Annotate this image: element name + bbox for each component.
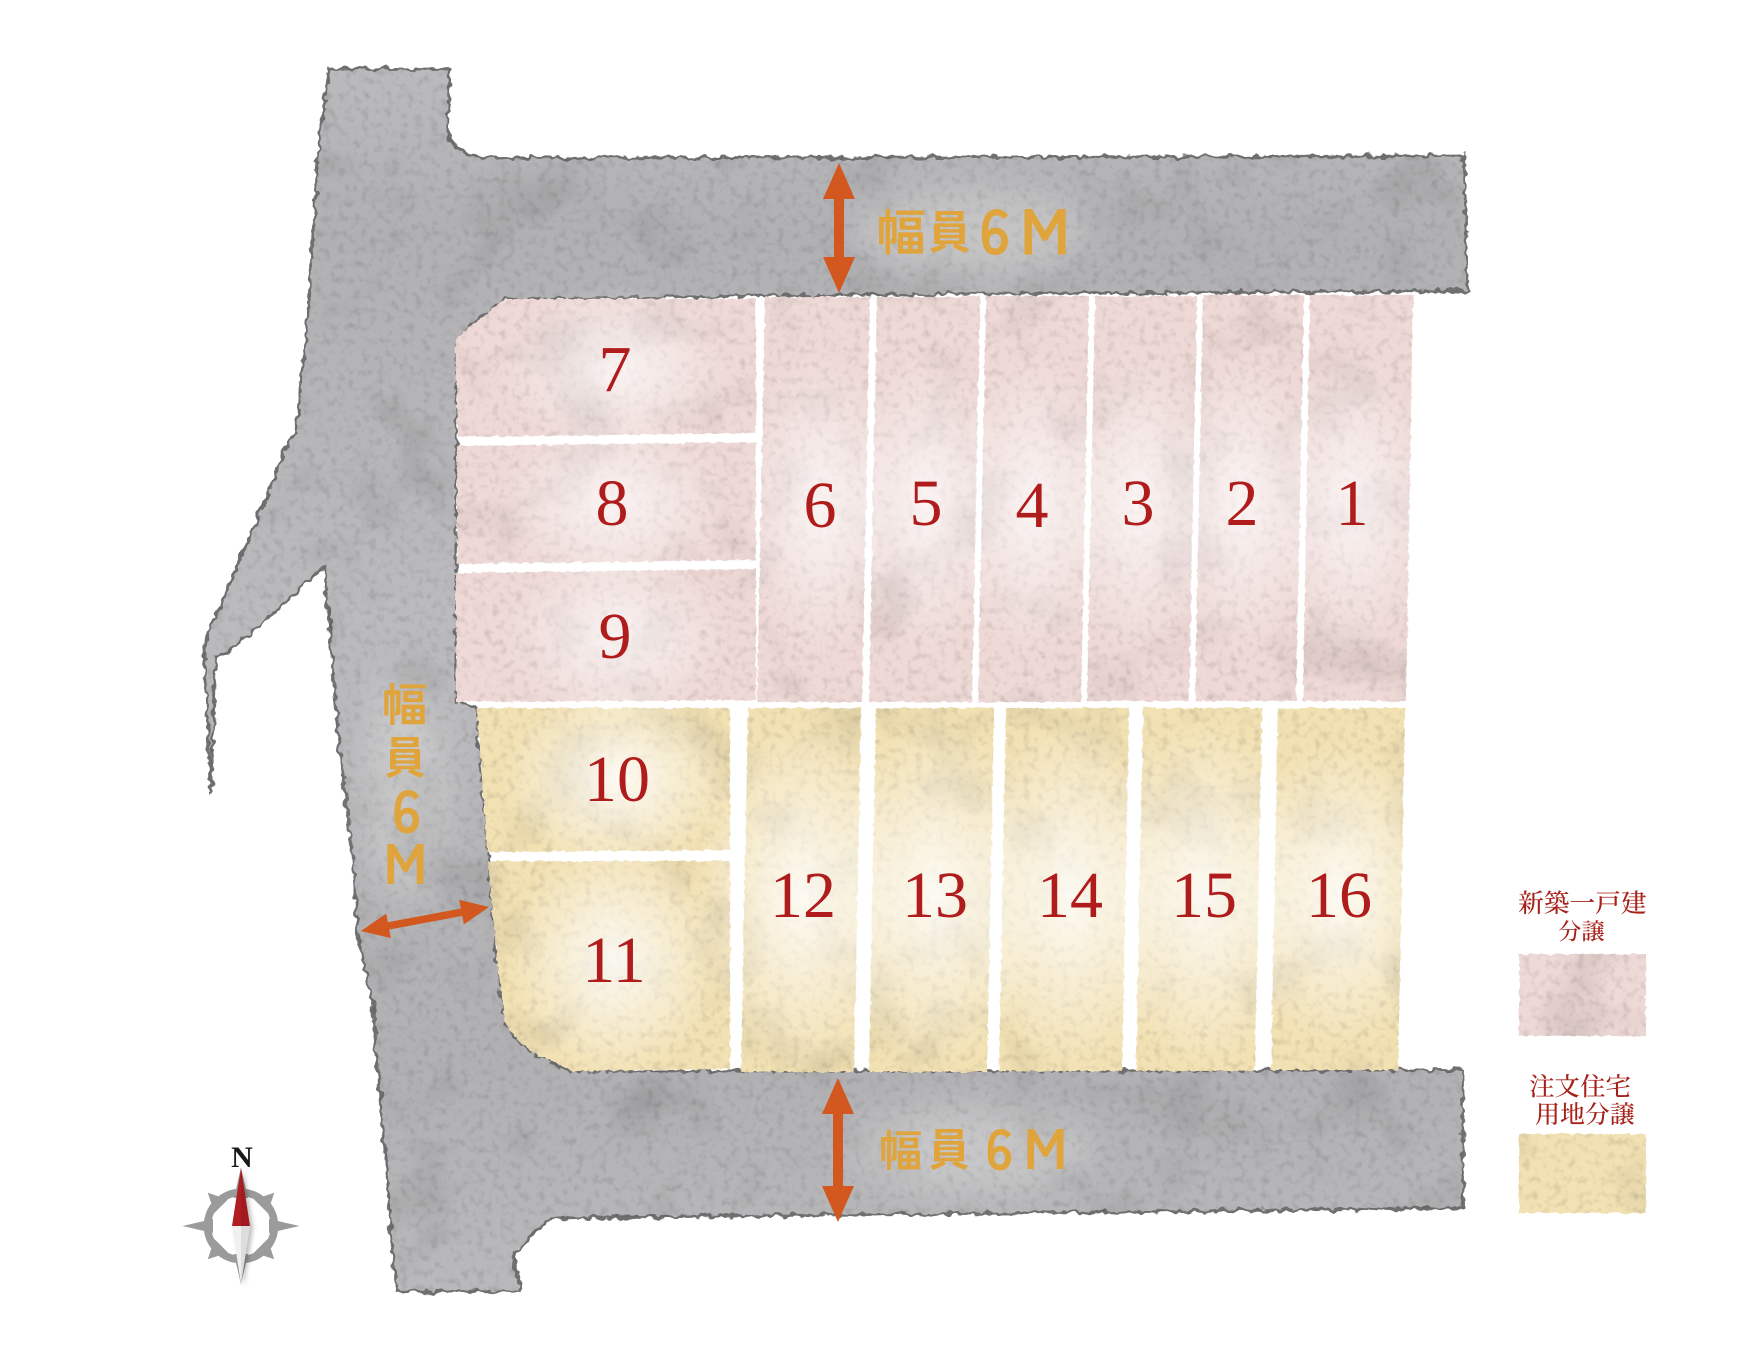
svg-text:12: 12 [770,859,836,932]
svg-text:10: 10 [584,743,650,816]
svg-text:4: 4 [1016,469,1049,542]
svg-text:7: 7 [599,333,632,406]
svg-text:N: N [231,1141,253,1174]
svg-text:5: 5 [910,467,943,540]
svg-text:15: 15 [1171,859,1237,932]
svg-text:11: 11 [582,924,646,997]
svg-text:16: 16 [1306,859,1372,932]
svg-text:14: 14 [1037,859,1103,932]
svg-text:6: 6 [804,469,837,542]
svg-text:13: 13 [902,859,968,932]
svg-text:9: 9 [599,600,632,673]
svg-text:8: 8 [596,467,629,540]
svg-text:2: 2 [1226,467,1259,540]
svg-text:1: 1 [1336,467,1369,540]
svg-text:3: 3 [1122,467,1155,540]
